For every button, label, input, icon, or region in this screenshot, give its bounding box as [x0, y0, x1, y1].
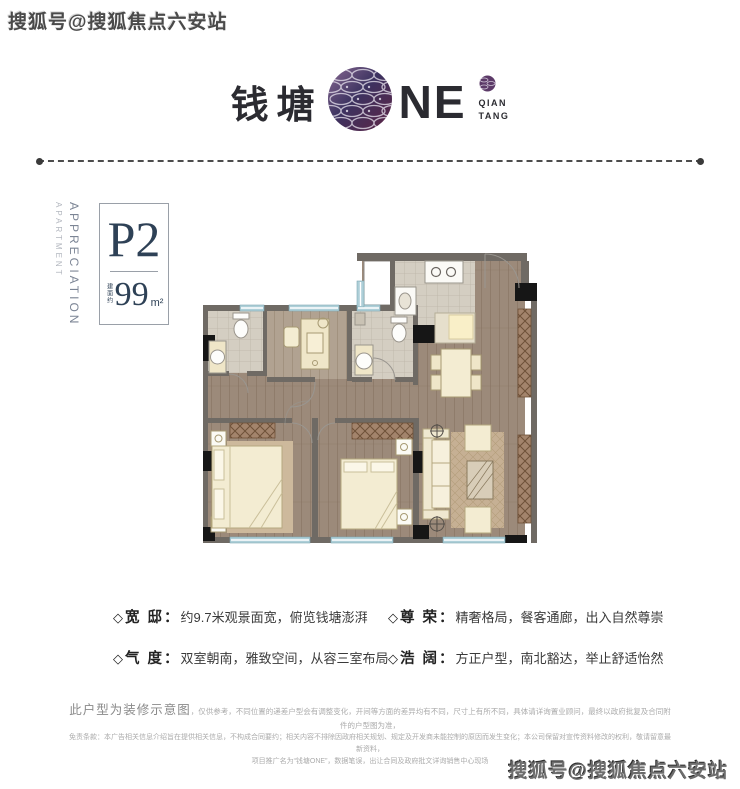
unit-code-box: P2 建面约 99 m²: [99, 203, 169, 325]
feature-label: 尊 荣: [400, 610, 439, 626]
diamond-icon: ◇: [113, 610, 123, 625]
feature-colon: ：: [164, 651, 181, 667]
diamond-icon: ◇: [113, 651, 123, 666]
feature-item: ◇宽 邸：约9.7米观景面宽，俯览钱塘澎湃: [113, 606, 368, 627]
feature-label: 宽 邸: [125, 610, 164, 626]
disclaimer-line2: 免责条款：本广告相关信息介绍旨在提供相关信息，不构成合同要约；相关内容不排除因政…: [68, 732, 672, 756]
divider-dot-right: [697, 158, 704, 165]
side-label-appreciation: APPRECIATION: [67, 202, 81, 326]
disclaimer-lead: 此户型为装修示意图: [69, 703, 191, 717]
feature-desc: 双室朝南，雅致空间，从容三室布局: [181, 651, 389, 666]
logo-badge-line1: QIAN: [479, 97, 508, 109]
logo-scale-emblem-icon: [327, 66, 393, 137]
feature-label: 气 度: [125, 651, 164, 667]
feature-desc: 精奢格局，餐客通廊，出入自然尊崇: [456, 610, 664, 625]
feature-item: ◇尊 荣：精奢格局，餐客通廊，出入自然尊崇: [388, 606, 664, 627]
feature-item: ◇气 度：双室朝南，雅致空间，从容三室布局: [113, 647, 389, 668]
unit-area: 建面约 99 m²: [105, 278, 164, 312]
logo-badge: QIAN TANG: [479, 75, 510, 121]
floor-plan: [185, 241, 541, 556]
feature-item: ◇浩 阔：方正户型，南北豁达，举止舒适怡然: [388, 647, 664, 668]
feature-colon: ：: [439, 651, 456, 667]
logo-cn-text: 钱塘: [231, 74, 323, 129]
feature-label: 浩 阔: [400, 651, 439, 667]
unit-area-value: 99: [115, 278, 149, 312]
disclaimer-line1-rest: ，仅供参考，不同位置的递差户型会有调整变化，开间等方面的差异均有不同，尺寸上有所…: [191, 707, 671, 730]
unit-box-divider: [110, 271, 158, 272]
feature-desc: 方正户型，南北豁达，举止舒适怡然: [456, 651, 664, 666]
diamond-icon: ◇: [388, 610, 398, 625]
disclaimer-line1: 此户型为装修示意图，仅供参考，不同位置的递差户型会有调整变化，开间等方面的差异均…: [68, 700, 672, 732]
unit-area-unit: m²: [151, 297, 164, 309]
unit-code: P2: [108, 214, 161, 264]
side-label-apartment: APARTMENT: [54, 202, 63, 326]
logo-en-text: NE: [399, 75, 467, 129]
plan-bedroom1-furniture: [211, 431, 282, 532]
watermark-top-left: 搜狐号@搜狐焦点六安站: [8, 7, 228, 34]
logo-badge-line2: TANG: [479, 110, 510, 122]
diamond-icon: ◇: [388, 651, 398, 666]
feature-colon: ：: [439, 610, 456, 626]
unit-area-prefix: 建面约: [105, 283, 114, 304]
feature-desc: 约9.7米观景面宽，俯览钱塘澎湃: [181, 610, 368, 625]
side-vertical-labels: APARTMENT APPRECIATION: [54, 202, 81, 326]
flyer-page: 搜狐号@搜狐焦点六安站 钱塘: [0, 0, 740, 789]
brand-logo: 钱塘: [0, 66, 740, 137]
watermark-bottom-right: 搜狐号@搜狐焦点六安站: [508, 756, 728, 783]
divider-dot-left: [36, 158, 43, 165]
feature-colon: ：: [164, 610, 181, 626]
logo-badge-seal-icon: [479, 75, 496, 97]
dashed-divider: [38, 160, 702, 162]
